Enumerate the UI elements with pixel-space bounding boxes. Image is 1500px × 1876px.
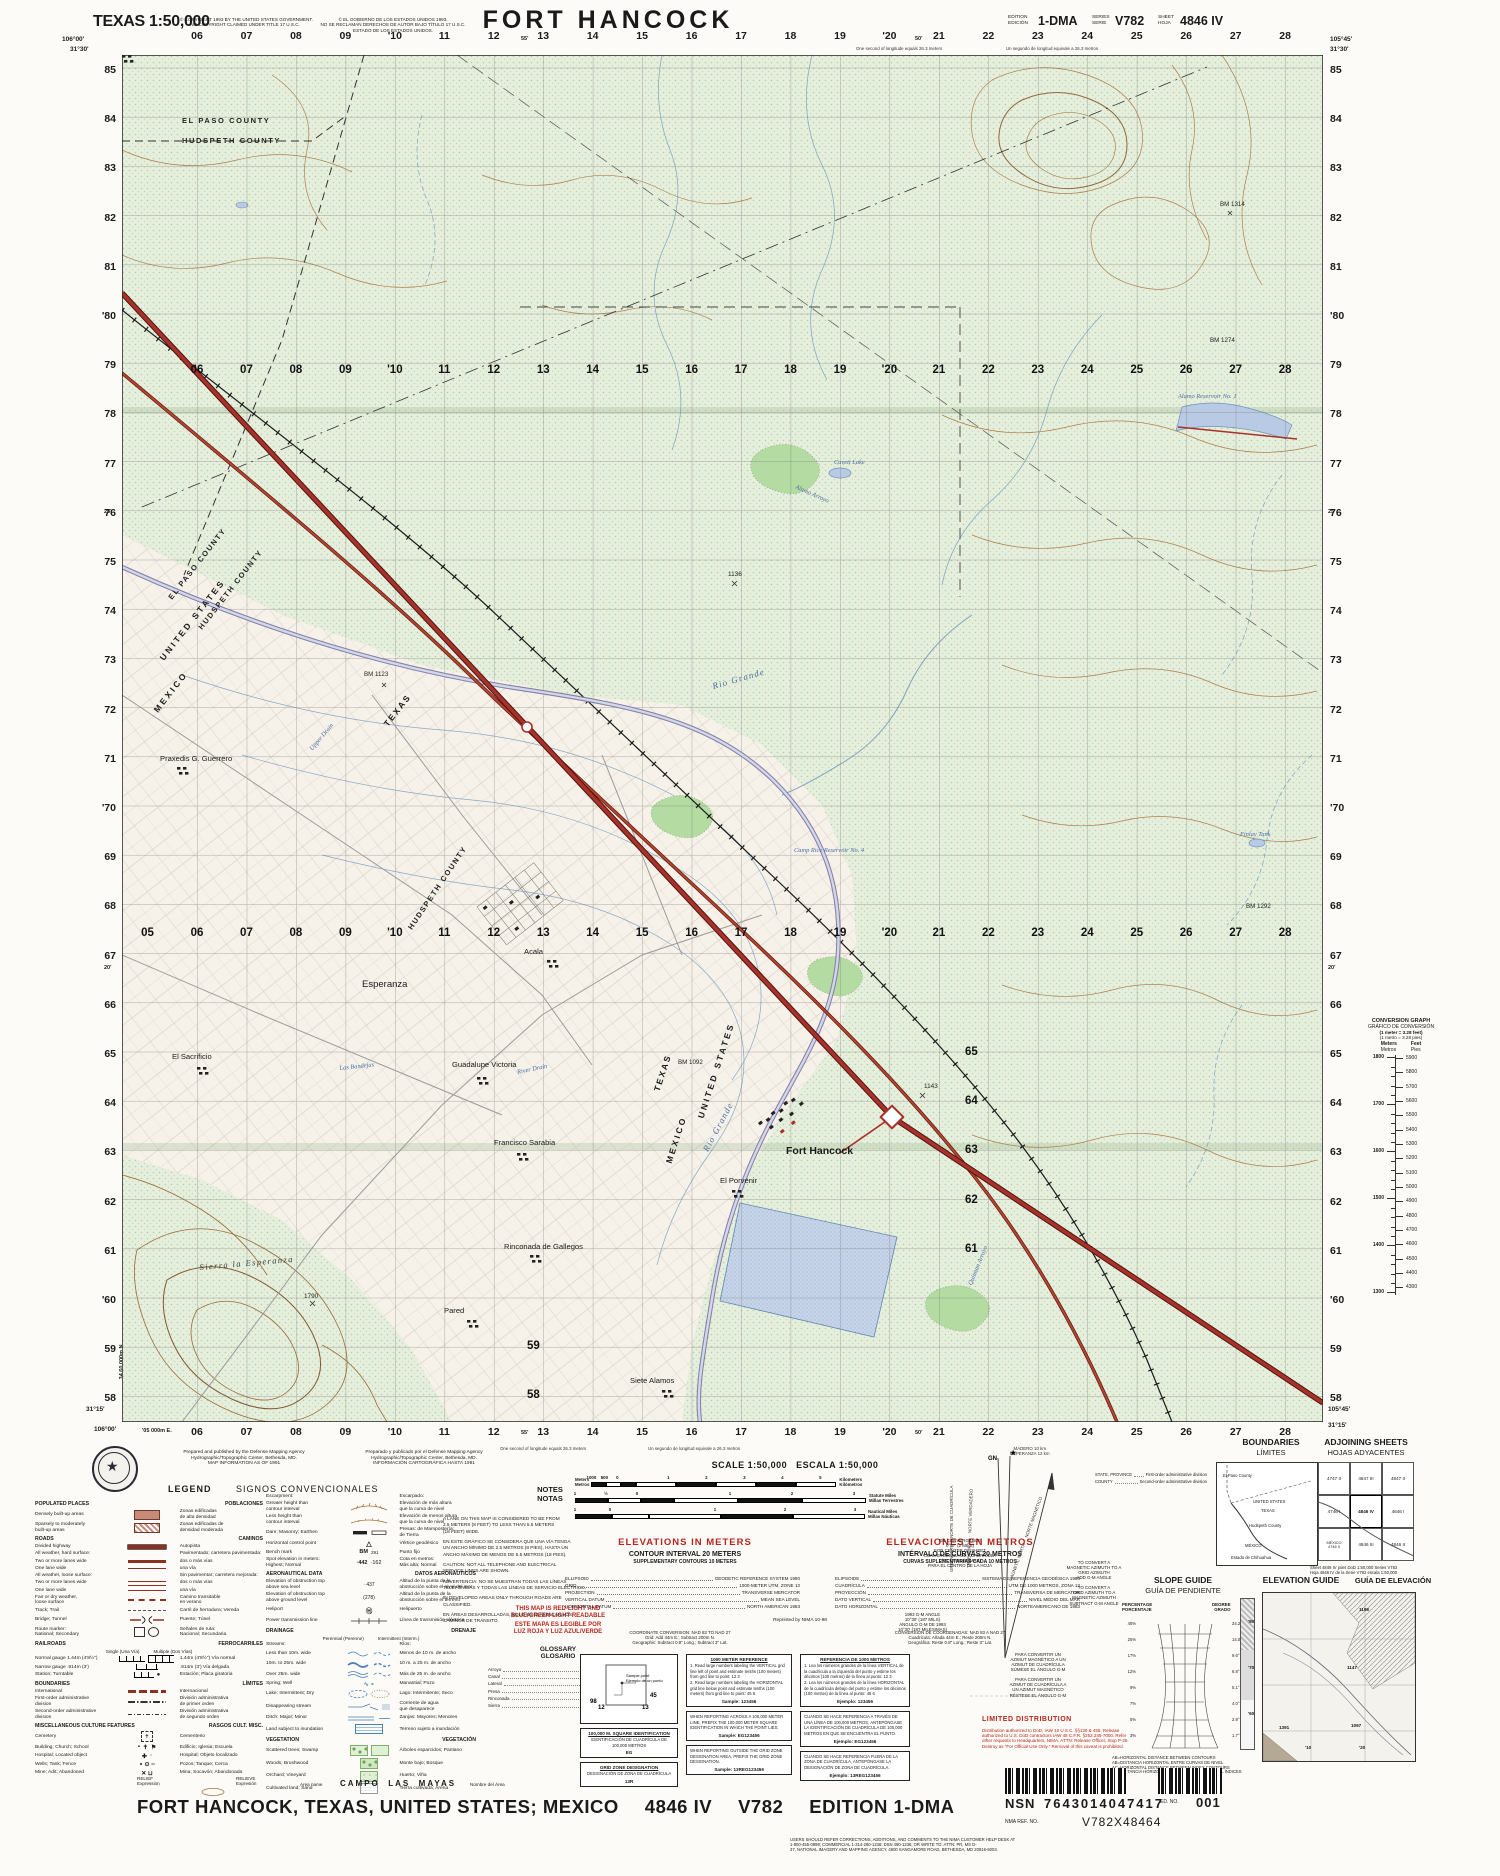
grid-label-top: 13 (537, 30, 549, 42)
azimuth-conversion-en: TO CONVERT A MAGNETIC AZIMUTH TO A GRID … (1048, 1560, 1140, 1606)
adjoining-sheet-cell: 4847 III (1350, 1462, 1382, 1495)
series-label: SERIES SERIE (1092, 15, 1110, 26)
grid-label-right: 84 (1330, 113, 1342, 125)
svg-text:45: 45 (650, 1693, 657, 1699)
grid-reference-box: CUANDO SE HACE REFERENCIA FUERA DE LA ZO… (800, 1751, 910, 1781)
grid-label-interior: 27 (1229, 927, 1242, 940)
seal-emblem: ★ (106, 1458, 119, 1475)
legend-row: Land subject to inundationTerreno sujeto… (266, 1724, 476, 1734)
grid-label-interior: '10 (387, 364, 403, 377)
elevation-guide-heading-es: GUÍA DE ELEVACIÓN (1348, 1577, 1438, 1586)
legend-row: Fair or dry weather, loose surfaceCamino… (35, 1595, 263, 1606)
grid-label-interior: 17 (735, 927, 748, 940)
grid-label-interior: 07 (240, 927, 253, 940)
grid-label-interior: 09 (339, 364, 352, 377)
grid-label-bottom: 06 (191, 1426, 203, 1438)
grid-label-interior: 08 (290, 364, 303, 377)
boundaries-inset-label: MÉXICO (1245, 1543, 1262, 1548)
scale-title: SCALE 1:50,000 ESCALA 1:50,000 (635, 1460, 955, 1470)
adjoining-sheet-cell: 4747 II (1318, 1462, 1350, 1495)
grid-label-right: '80 (1330, 310, 1344, 322)
grid-label-bottom: 23 (1032, 1426, 1044, 1438)
conversion-feet-label: 5200 (1406, 1155, 1417, 1161)
users-note: USERS SHOULD REFER CORRECTIONS, ADDITION… (790, 1838, 1250, 1852)
grid-label-interior: 19 (834, 364, 847, 377)
svg-text:GN: GN (988, 1456, 997, 1462)
grid-convergence-note: GN CONVERGENCE 0°07' (2 MILS) FOR CENTER… (905, 1538, 1015, 1568)
grid-label-bottom: 14 (587, 1426, 599, 1438)
grid-label-interior: '20 (882, 364, 898, 377)
conversion-feet-label: 4400 (1406, 1270, 1417, 1276)
feet-column-label: FeetPies (1411, 1041, 1421, 1053)
elevation-guide-heading: ELEVATION GUIDE (1256, 1576, 1346, 1586)
boundaries-inset-label: TEXAS (1261, 1508, 1275, 1513)
legend-row: Second-order administrative divisionDivi… (35, 1709, 263, 1720)
grid-label-right: 58 (1330, 1392, 1342, 1404)
grid-label-left: 63 (88, 1146, 116, 1158)
relief-legend-es: RELIEVE Expresión (236, 1776, 256, 1787)
grid-minute-tick-left: 20' (104, 965, 111, 971)
grid-label-right: 61 (1330, 1245, 1342, 1257)
legend-row: Streams:Ríos: (266, 1642, 476, 1648)
slope-percentage-label: PERCENTAGE PORCENTAJE (1122, 1602, 1152, 1612)
slope-tick-left: 5% (1118, 1718, 1136, 1723)
grid-label-left: 82 (88, 212, 116, 224)
grid-label-right: 79 (1330, 359, 1342, 371)
grid-label-right: 69 (1330, 851, 1342, 863)
legend-row: First-order administrative divisionDivis… (35, 1696, 263, 1707)
grid-label-interior: 23 (1031, 927, 1044, 940)
conversion-feet-label: 5900 (1406, 1055, 1417, 1061)
grid-label-interior: 22 (982, 927, 995, 940)
grid-label-top: 14 (587, 30, 599, 42)
legend-row: Normal gauge 1.44m (4'8½")1.44m (4'8½") … (35, 1655, 263, 1663)
datum-row: GRID1000-METER UTM, ZONE 13 (565, 1583, 800, 1590)
grid-label-bottom: 07 (241, 1426, 253, 1438)
grid-label-top: 12 (488, 30, 500, 42)
grid-label-top: 16 (686, 30, 698, 42)
grid-label-right: 62 (1330, 1196, 1342, 1208)
grid-label-bottom: 25 (1131, 1426, 1143, 1438)
grid-label-right: 85 (1330, 64, 1342, 76)
supp-contours-en: SUPPLEMENTARY CONTOURS 10 METERS (575, 1560, 795, 1566)
legend-row: Less than 10m. wide Menos de 10 m. de an… (266, 1649, 476, 1658)
grid-label-right: 75 (1330, 556, 1342, 568)
elevation-guide-spot: 1391 (1279, 1725, 1289, 1730)
elevation-guide-grid-ref: '70 (1248, 1665, 1254, 1670)
grid-label-interior: 65 (965, 1046, 978, 1059)
grid-label-interior: 27 (1229, 364, 1242, 377)
conversion-feet-label: 4800 (1406, 1213, 1417, 1219)
legend-row: Track; TrailCarril de herradura; Vereda (35, 1608, 263, 1614)
legend-row: Densely built-up areasZonas edificadas d… (35, 1509, 263, 1520)
grid-label-interior: 06 (191, 927, 204, 940)
corner-bottom-left-easting: '05 000m E. (142, 1428, 172, 1434)
grid-label-top: 17 (735, 30, 747, 42)
slope-guide-heading: SLOPE GUIDE (1128, 1576, 1238, 1586)
corner-top-right-lon: 105°45' (1330, 36, 1352, 43)
boundaries-heading-es: LÍMITES (1226, 1449, 1316, 1458)
legend-section: RAILROADSFERROCARRILESSingle (Una Vía)Mu… (35, 1641, 263, 1678)
grid-label-interior: 17 (735, 364, 748, 377)
elevations-heading-en: ELEVATIONS IN METERS (575, 1538, 795, 1549)
grid-label-right: 67 (1330, 950, 1342, 962)
grid-label-left: 76 (88, 507, 116, 519)
sheet-number-label: SHEET HOJA (1158, 15, 1174, 26)
grid-label-left: 69 (88, 851, 116, 863)
legend-row: Station; Turntable●Estación; Placa girat… (35, 1672, 263, 1678)
footer-edition: EDITION 1-DMA (809, 1796, 954, 1818)
grid-label-interior: 15 (636, 927, 649, 940)
boundaries-heading: BOUNDARIES (1226, 1438, 1316, 1448)
svg-text:98: 98 (590, 1699, 597, 1705)
legend-row: 10m. to 25m. wide 10 m. a 25 m. de ancho (266, 1660, 476, 1669)
notes-block: A LANE ON THIS MAP IS CONSIDERED TO BE F… (443, 1516, 633, 1629)
legend-row: Over 25m. wide Más de 25 m. de ancho (266, 1670, 476, 1679)
boundaries-inset-label: Estado de Chihuahua (1231, 1555, 1271, 1560)
slope-fan-diagram (1140, 1620, 1230, 1752)
grid-label-top: '10 (388, 30, 402, 42)
slope-tick-left: 7% (1118, 1702, 1136, 1707)
adjoining-sheet-cell: MÉXICO4746 II (1318, 1528, 1350, 1561)
declination-axis-label: GRID NORTH · NORTE DE CUADRÍCULA (949, 1486, 954, 1572)
legend-row: Spring; Well∿ ∘Manantial; Pozo (266, 1681, 476, 1688)
grid-label-bottom: 16 (686, 1426, 698, 1438)
grid-label-top: 26 (1180, 30, 1192, 42)
grid-label-interior: 24 (1081, 364, 1094, 377)
series-value: V782 (1115, 14, 1144, 28)
grid-minute-tick-top: 50' (915, 36, 922, 42)
grid-label-interior: 11 (438, 364, 450, 377)
grid-label-bottom: 21 (933, 1426, 945, 1438)
adjoining-sheet-cell: 4846 III (1350, 1528, 1382, 1561)
slope-degree-label: DEGREE GRADO (1212, 1602, 1231, 1612)
grid-label-left: '60 (88, 1294, 116, 1306)
grid-reference-box: CUANDO SE HACE REFERENCIA A TRAVÉS DE UN… (800, 1711, 910, 1747)
grid-reference-box: 12139845Sample pointEjemplo de un punto (580, 1654, 678, 1724)
legend-row: Woods; BrushwoodMonte bajo; Bosque (266, 1758, 476, 1769)
slope-tick-right: 9.6° (1232, 1654, 1240, 1659)
grid-label-interior: 26 (1180, 364, 1193, 377)
grid-label-bottom: 18 (785, 1426, 797, 1438)
edition-label: EDITION EDICIÓN (1008, 15, 1028, 26)
grid-label-left: 58 (88, 1392, 116, 1404)
grid-label-left: 64 (88, 1097, 116, 1109)
grid-label-interior: 28 (1279, 364, 1292, 377)
legend-section: POPULATED PLACESPOBLACIONESDensely built… (35, 1501, 263, 1533)
elevation-guide-grid-ref: '80 (1248, 1619, 1254, 1624)
legend-section: BOUNDARIESLÍMITESInternationalInternacio… (35, 1681, 263, 1720)
grid-label-interior: 11 (438, 927, 450, 940)
margin-note-bottom: Un segundo de longitud equivale a 26.3 m… (648, 1446, 740, 1451)
grid-label-left: 81 (88, 261, 116, 273)
margin-note-top: One second of longitude equals 26.3 mete… (856, 46, 942, 51)
grid-label-bottom: 17 (735, 1426, 747, 1438)
grid-label-left: '70 (88, 802, 116, 814)
boundaries-legend: STATE, PROVINCEFirst-order administrativ… (1095, 1472, 1207, 1485)
edition-barcode (1158, 1768, 1222, 1794)
corner-bottom-left-lon: 106°00' (94, 1426, 116, 1433)
grid-label-top: 28 (1279, 30, 1291, 42)
copyright-en: © COPYRIGHT 1993 BY THE UNITED STATES GO… (180, 17, 310, 28)
grid-label-interior: 12 (487, 927, 500, 940)
conversion-feet-label: 4600 (1406, 1241, 1417, 1247)
conversion-feet-label: 5300 (1406, 1141, 1417, 1147)
map-artwork (122, 55, 1323, 1422)
legend-row: Wells; Tank; Fence∘ ⊙ ╌Pozos; Tanque; Ce… (35, 1761, 263, 1768)
grid-label-left: 74 (88, 605, 116, 617)
dma-seal: ★ (92, 1446, 136, 1490)
corner-top-right-lat: 31°30' (1330, 46, 1349, 53)
conversion-feet-label: 4900 (1406, 1198, 1417, 1204)
elevation-guide-grid-ref: '10 (1305, 1745, 1311, 1750)
slope-tick-left: 17% (1118, 1654, 1136, 1659)
elevation-guide-grid-ref: '20 (1359, 1745, 1365, 1750)
legend-row: Scattered trees; SwampÁrboles esparcidos… (266, 1745, 476, 1756)
grid-label-left: 59 (88, 1343, 116, 1355)
grid-label-top: 15 (636, 30, 648, 42)
grid-label-interior: 22 (982, 364, 995, 377)
legend-row: Building; Church; School▪✝⚑Edificio; Igl… (35, 1744, 263, 1751)
datum-row: ELLIPSOIDGEODETIC REFERENCE SYSTEM 1980 (565, 1576, 800, 1583)
reprint-note: Reprinted by NIMA 10-98 (700, 1618, 900, 1624)
svg-text:12: 12 (598, 1705, 605, 1711)
legend-row: Greater height than contour interval Ele… (266, 1501, 476, 1512)
adjoining-sheet-cell: 4846 I (1382, 1495, 1414, 1528)
datum-row: HORIZONTAL DATUMNORTH AMERICAN 1983 (565, 1604, 800, 1611)
conversion-feet-label: 5400 (1406, 1127, 1417, 1133)
grid-label-bottom: 11 (439, 1426, 450, 1438)
conversion-scale: 1800170016001500140013005900580057005600… (1346, 1055, 1456, 1300)
sheet-number-value: 4846 IV (1180, 14, 1223, 28)
grid-label-left: 84 (88, 113, 116, 125)
elevation-guide-inset: 1198114713911097'80'70'60'10'20 (1262, 1592, 1416, 1762)
grid-label-bottom: 28 (1279, 1426, 1291, 1438)
grid-label-interior: 15 (636, 364, 649, 377)
datum-table-en: ELLIPSOIDGEODETIC REFERENCE SYSTEM 1980G… (565, 1576, 800, 1610)
grid-label-interior: 16 (685, 364, 698, 377)
grid-reference-box: 1000 METER REFERENCE1. Read large number… (686, 1654, 792, 1707)
adjoining-sheet-cell: 4846 II (1382, 1528, 1414, 1561)
legend-row: One lane wide una vía (35, 1588, 263, 1594)
grid-label-top: 18 (785, 30, 797, 42)
topographic-map[interactable] (122, 55, 1323, 1422)
grid-label-left: 78 (88, 408, 116, 420)
boundaries-inset-label: El Paso County (1223, 1473, 1252, 1478)
conversion-feet-label: 5600 (1406, 1098, 1417, 1104)
grid-label-top: 25 (1131, 30, 1143, 42)
grid-label-interior: 14 (586, 927, 599, 940)
boundaries-inset-label: Hudspeth County (1249, 1523, 1281, 1528)
slope-tick-left: 45% (1118, 1622, 1136, 1627)
adjoining-sheet-cell: 4846 IV (1350, 1495, 1382, 1528)
legend-row: Two or more lanes wide dos o más vías (35, 1580, 263, 1586)
grid-label-top: '20 (882, 30, 896, 42)
grid-label-bottom: '20 (882, 1426, 896, 1438)
nma-ref-label: NMA REF. NO. (1005, 1820, 1038, 1826)
legend-row: All weather, hard surface:Pavimentado; c… (35, 1551, 263, 1557)
grid-label-interior: 28 (1279, 927, 1292, 940)
grid-label-interior: 05 (141, 927, 154, 940)
corner-top-left-lat: 31°30' (70, 46, 89, 53)
grid-label-left: 61 (88, 1245, 116, 1257)
corner-bottom-right-lon: 105°45' (1328, 1406, 1350, 1413)
gm-angle-note: 1993 G-M ANGLE 10°30' (187 MILS) ÁNGULO … (875, 1612, 970, 1632)
grid-label-right: '60 (1330, 1294, 1344, 1306)
grid-label-top: 22 (983, 30, 995, 42)
legend-row: InternationalInternacional (35, 1689, 263, 1695)
relief-oval-symbol (200, 1784, 226, 1794)
grid-label-left: 85 (88, 64, 116, 76)
grid-label-top: 09 (340, 30, 352, 42)
legend-row: Bridge; TunnelPuente; Túnel (35, 1615, 263, 1625)
grid-reference-box: WHEN REPORTING ACROSS A 100,000 METER LI… (686, 1711, 792, 1741)
elevation-guide-spot: 1198 (1359, 1607, 1369, 1612)
footer-sheet-number: 4846 IV (645, 1796, 712, 1818)
grid-label-interior: '10 (387, 927, 403, 940)
slope-tick-left: 3% (1118, 1734, 1136, 1739)
grid-label-bottom: 24 (1081, 1426, 1093, 1438)
grid-label-bottom: 12 (488, 1426, 500, 1438)
map-sheet-page: TEXAS 1:50,000 © COPYRIGHT 1993 BY THE U… (0, 0, 1500, 1876)
legend-row: Hospital; Located object✚◦Hospital; Obje… (35, 1753, 263, 1760)
grid-label-bottom: 19 (834, 1426, 846, 1438)
legend-row: Narrow gauge .914m (3').914m (3') Vía de… (35, 1664, 263, 1670)
grid-label-right: 59 (1330, 1343, 1342, 1355)
grid-label-interior: 58 (527, 1389, 540, 1402)
conversion-feet-label: 4300 (1406, 1284, 1417, 1290)
grid-label-top: 06 (191, 30, 203, 42)
svg-text:Ejemplo de un punto: Ejemplo de un punto (626, 1678, 663, 1683)
footer-sheet-name: FORT HANCOCK, TEXAS, UNITED STATES; MEXI… (137, 1796, 619, 1818)
slope-guide-heading-es: GUÍA DE PENDIENTE (1128, 1587, 1238, 1596)
grid-label-interior: 18 (784, 927, 797, 940)
grid-label-bottom: 27 (1230, 1426, 1242, 1438)
nsn-label: NSN (1005, 1797, 1035, 1812)
grid-label-left: 73 (88, 654, 116, 666)
grid-label-interior: 25 (1130, 364, 1143, 377)
legend-row: Lake: Intermittent; DryLago: Intermitent… (266, 1689, 476, 1699)
datum-row: VERTICAL DATUMMEAN SEA LEVEL (565, 1597, 800, 1604)
boundaries-inset: El Paso CountyUNITED STATESTEXASHudspeth… (1216, 1462, 1318, 1566)
slope-tick-left: 12% (1118, 1670, 1136, 1675)
legend-section: DRAINAGEDRENAJEPerennial (Perenne)Interm… (266, 1628, 476, 1735)
grid-label-right: 77 (1330, 458, 1342, 470)
legend-section: MISCELLANEOUS CULTURE FEATURESRASGOS CUL… (35, 1723, 263, 1776)
grid-minute-tick-top: 55' (521, 36, 528, 42)
area-name-label-en: Area name (300, 1782, 322, 1787)
grid-label-interior: 13 (537, 364, 550, 377)
grid-label-left: 62 (88, 1196, 116, 1208)
grid-label-top: 21 (933, 30, 945, 42)
boundaries-legend-row: COUNTYSecond-order administrative divisi… (1095, 1479, 1207, 1486)
conversion-feet-label: 4500 (1406, 1256, 1417, 1262)
grid-label-right: 71 (1330, 753, 1342, 765)
notes-heading: NOTES NOTAS (520, 1486, 580, 1503)
grid-label-interior: 09 (339, 927, 352, 940)
legend-row: Divided highwayAutopista (35, 1544, 263, 1550)
grid-label-interior: 14 (586, 364, 599, 377)
legend-row: Route marker: National; SecondarySeñales… (35, 1627, 263, 1638)
corner-bottom-right-lat: 31°15' (1328, 1422, 1347, 1429)
grid-label-right: 74 (1330, 605, 1342, 617)
adjoining-sheet-cell: 4847 II (1382, 1462, 1414, 1495)
grid-label-top: 27 (1230, 30, 1242, 42)
grid-label-interior: 21 (932, 364, 945, 377)
elevation-guide-spot: 1147 (1347, 1665, 1357, 1670)
conversion-meters-label: 1800 (1358, 1054, 1384, 1060)
grid-label-left: 71 (88, 753, 116, 765)
grid-label-interior: 64 (965, 1095, 978, 1108)
grid-label-top: 08 (290, 30, 302, 42)
grid-label-interior: '20 (882, 927, 898, 940)
edition-number-value: 001 (1196, 1796, 1221, 1811)
legend-row: Cemetery✝Cementerio (35, 1731, 263, 1742)
grid-minute-tick-bottom: 55' (521, 1430, 528, 1436)
grid-label-interior: 13 (537, 927, 550, 940)
conversion-meters-label: 1300 (1358, 1289, 1384, 1295)
conversion-ratio-es: (1 metro = 3.28 pies) (1346, 1035, 1456, 1040)
grid-label-left: 77 (88, 458, 116, 470)
margin-note-top: Un segundo de longitud equivale a 26.3 m… (1006, 46, 1098, 51)
area-name-value: CAMPO LAS MAYAS (340, 1779, 456, 1788)
grid-minute-tick-right: 25' (1328, 509, 1335, 515)
nsn-value: 7643014047417 (1044, 1797, 1164, 1812)
grid-label-left: 66 (88, 999, 116, 1011)
grid-label-left: 72 (88, 704, 116, 716)
conversion-feet-label: 5700 (1406, 1084, 1417, 1090)
conversion-graph: CONVERSION GRAPH GRÁFICO DE CONVERSIÓN (… (1346, 1018, 1456, 1318)
grid-reference-box: 100,000 M. SQUARE IDENTIFICATIONIDENTIFI… (580, 1728, 678, 1758)
legend-row: Two or more lanes wide dos o más vías (35, 1559, 263, 1565)
conversion-meters-label: 1400 (1358, 1242, 1384, 1248)
elevation-guide-grid-ref: '60 (1248, 1711, 1254, 1716)
grid-label-interior: 23 (1031, 364, 1044, 377)
adjoining-sheets-grid: 4747 II4847 III4847 II4746 I4846 IV4846 … (1318, 1462, 1414, 1561)
conversion-meters-label: 1700 (1358, 1101, 1384, 1107)
legend-heading: LEGEND (168, 1484, 212, 1494)
conversion-feet-label: 5800 (1406, 1069, 1417, 1075)
slope-tick-right: 5.1° (1232, 1686, 1240, 1691)
legend-row: All weather, loose surface:Sin pavimenta… (35, 1573, 263, 1579)
adjoining-sheet-cell: 4746 I (1318, 1495, 1350, 1528)
grid-label-interior: 59 (527, 1340, 540, 1353)
grid-label-interior: 19 (834, 927, 847, 940)
datum-row: PROJECTIONTRANSVERSE MERCATOR (565, 1590, 800, 1597)
grid-label-top: 24 (1081, 30, 1093, 42)
contour-interval-en: CONTOUR INTERVAL 20 METERS (575, 1551, 795, 1559)
grid-label-right: 64 (1330, 1097, 1342, 1109)
grid-label-right: 83 (1330, 162, 1342, 174)
legend-row: Escarpment:Escarpado: (266, 1494, 476, 1500)
legend-column-left: POPULATED PLACESPOBLACIONESDensely built… (35, 1498, 263, 1780)
adjoining-sheets-heading: ADJOINING SHEETS (1318, 1438, 1414, 1448)
conversion-meters-label: 1600 (1358, 1148, 1384, 1154)
grid-label-interior: 07 (240, 364, 253, 377)
legend-row: Ditch: Major; MinorZanjas: Mayores; Meno… (266, 1714, 476, 1723)
grid-label-top: 19 (834, 30, 846, 42)
conversion-feet-label: 5100 (1406, 1170, 1417, 1176)
conversion-feet-label: 5000 (1406, 1184, 1417, 1190)
footer-series: V782 (738, 1796, 783, 1818)
grid-label-bottom: 08 (290, 1426, 302, 1438)
grid-label-interior: 21 (932, 927, 945, 940)
grid-label-interior: 62 (965, 1194, 978, 1207)
coord-conversion-en: COORDINATE CONVERSION: NAD 83 TO NAD 27 … (580, 1630, 780, 1645)
grid-label-interior: 24 (1081, 927, 1094, 940)
grid-reference-box: GRID ZONE DESIGNATIONDESIGNACIÓN DE ZONA… (580, 1762, 678, 1787)
grid-reference-box: WHEN REPORTING OUTSIDE THE GRID ZONE DES… (686, 1745, 792, 1775)
